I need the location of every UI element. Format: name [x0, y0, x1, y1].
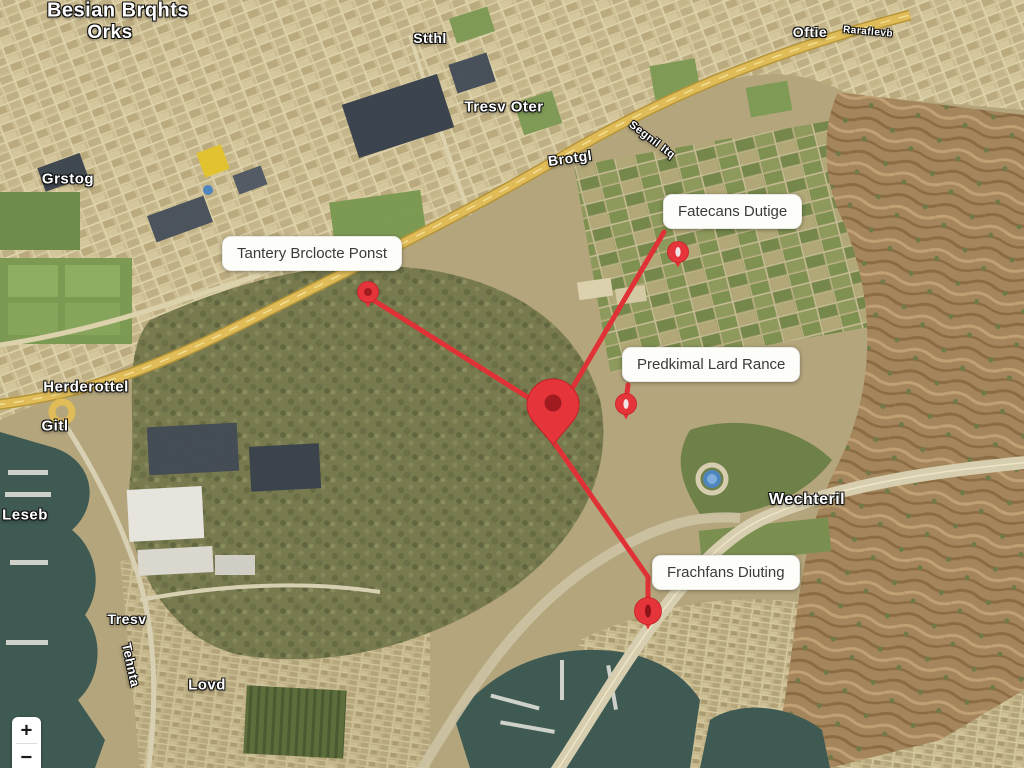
callout-frachfans[interactable]: Frachfans Diuting	[652, 555, 800, 590]
callout-predkimal[interactable]: Predkimal Lard Rance	[622, 347, 800, 382]
map-place-label: Tresv Oter	[464, 99, 543, 116]
zoom-out-button[interactable]: −	[12, 744, 41, 768]
map-place-label: Herderottel	[43, 379, 129, 396]
zoom-in-button[interactable]: +	[12, 717, 41, 743]
map-place-label: Grstog	[42, 171, 94, 188]
zoom-control: + −	[12, 717, 41, 768]
callout-tantery[interactable]: Tantery Brclocte Ponst	[222, 236, 402, 271]
map-place-label: Leseb	[2, 507, 48, 524]
map-place-label: Orks	[87, 22, 132, 44]
map-place-label: Oftie	[793, 24, 827, 40]
map-viewport[interactable]: Besian BrqhtsOrksStthlTresv OterBrotglSe…	[0, 0, 1024, 768]
map-place-label: Tresv	[107, 611, 146, 627]
map-place-label: Wechteril	[769, 491, 845, 509]
map-place-label: Gitl	[42, 418, 69, 435]
map-place-label: Lovd	[188, 677, 226, 694]
map-place-label: Besian Brqhts	[47, 0, 189, 23]
callout-fatecans[interactable]: Fatecans Dutige	[663, 194, 802, 229]
map-place-label: Stthl	[413, 30, 447, 46]
